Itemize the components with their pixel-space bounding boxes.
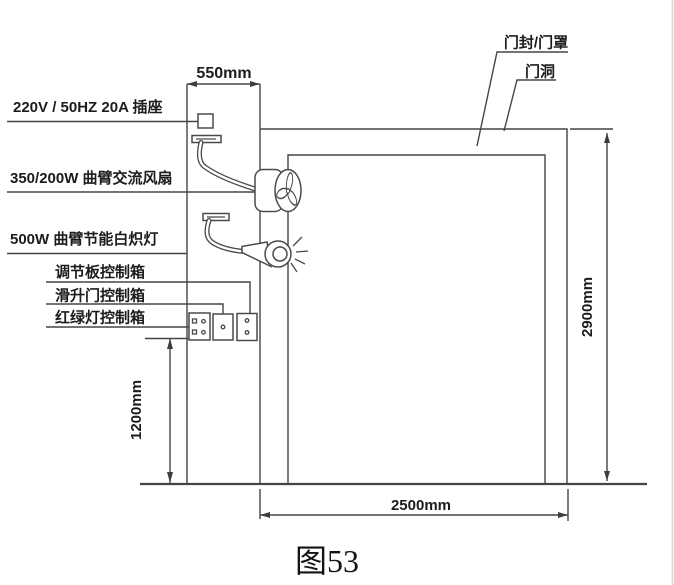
dimension-2500: 2500mm: [260, 489, 568, 521]
control-boxes: [189, 313, 257, 341]
fan-icon: [192, 136, 301, 212]
door-seal-label: 门封/门罩: [504, 34, 568, 52]
sliding-door-control-box: [213, 314, 233, 340]
arrow-right-icon: [558, 512, 568, 518]
lamp-icon: [203, 214, 308, 273]
installation-diagram: 550mm 2900mm 2500mm 1200mm: [0, 0, 674, 585]
door-opening-leader: [504, 80, 556, 131]
regulator-control-box: [237, 314, 257, 341]
lamp-label: 500W 曲臂节能白炽灯: [10, 230, 158, 248]
traffic-light-box-label: 红绿灯控制箱: [55, 309, 145, 327]
door-opening-frame: [288, 155, 545, 483]
arrow-down-icon: [167, 472, 173, 483]
light-rays-icon: [291, 237, 308, 272]
door-opening-label: 门洞: [525, 63, 555, 81]
socket-icon: [198, 114, 213, 128]
dimension-2900: 2900mm: [570, 129, 613, 481]
figure-page: 550mm 2900mm 2500mm 1200mm: [0, 0, 674, 585]
dimension-550: 550mm: [187, 65, 260, 87]
arrow-left-icon: [260, 512, 270, 518]
arrow-up-icon: [167, 339, 173, 350]
fan-arm: [199, 143, 255, 190]
arrow-down-icon: [604, 471, 610, 481]
fan-label: 350/200W 曲臂交流风扇: [10, 169, 173, 187]
dimension-1200: 1200mm: [128, 339, 189, 484]
figure-caption: 图53: [295, 543, 359, 579]
door-seal-frame: [260, 129, 567, 483]
lamp-bulb: [273, 247, 287, 261]
dim-1200-label: 1200mm: [128, 380, 145, 440]
arrow-up-icon: [604, 133, 610, 143]
structure-lines: [140, 84, 647, 484]
socket-label: 220V / 50HZ 20A 插座: [13, 98, 163, 116]
sliding-door-box-label: 滑升门控制箱: [55, 287, 145, 305]
dim-550-label: 550mm: [196, 65, 251, 82]
lamp-arm: [207, 221, 245, 252]
traffic-light-control-box: [189, 313, 210, 340]
regulator-box-label: 调节板控制箱: [55, 263, 145, 281]
dim-2900-label: 2900mm: [579, 277, 596, 337]
dim-2500-label: 2500mm: [391, 497, 451, 514]
